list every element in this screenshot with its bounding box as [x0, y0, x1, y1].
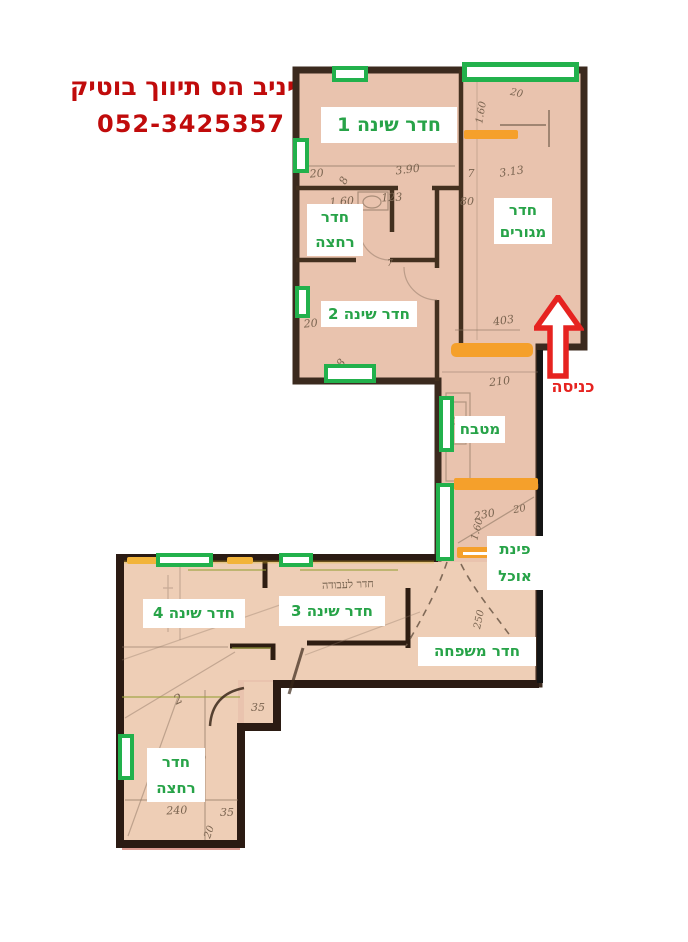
door-marker	[127, 557, 159, 564]
measurement: 35	[251, 701, 265, 714]
window-marker	[156, 553, 213, 567]
window-marker	[324, 364, 376, 383]
measurement: 7	[468, 167, 475, 180]
room-label-living: חדר מגורים	[494, 198, 552, 244]
window-marker	[118, 734, 134, 780]
window-marker	[279, 553, 313, 567]
entrance-label: כניסה	[542, 377, 604, 396]
room-label-bedroom4: חדר שינה 4	[143, 599, 245, 628]
measurement: 80	[460, 195, 474, 208]
measurement: 123	[381, 190, 403, 204]
window-marker	[439, 396, 454, 452]
door-marker	[454, 478, 538, 490]
measurement: 35	[220, 806, 234, 819]
handwritten-room-note: חדר לעבודה	[322, 577, 374, 592]
room-label-kitchen: מטבח	[455, 416, 505, 443]
flyer-page: יניב הס תיווך בוטיק 052-3425357	[0, 0, 688, 942]
room-label-bedroom3: חדר שינה 3	[279, 596, 385, 626]
window-marker	[462, 62, 579, 82]
door-marker-entrance	[451, 343, 533, 357]
measurement: 7	[387, 259, 393, 269]
window-marker	[295, 286, 310, 318]
measurement: 20	[308, 166, 324, 180]
room-label-bedroom1: חדר שינה 1	[321, 107, 457, 143]
room-label-dining: פינת אוכל	[487, 536, 543, 590]
measurement: 240	[165, 803, 188, 817]
room-label-bath-top: חדר רחצה	[307, 204, 363, 256]
room-label-bath-bottom: חדר רחצה	[147, 748, 205, 802]
door-marker	[227, 557, 253, 564]
entrance-arrow-icon	[534, 295, 584, 381]
window-marker	[436, 483, 454, 561]
measurement: 20	[302, 316, 318, 330]
room-label-bedroom2: חדר שינה 2	[321, 301, 417, 327]
window-marker	[293, 138, 309, 173]
room-label-family: חדר משפחה	[418, 637, 536, 666]
window-marker	[332, 66, 368, 82]
measurement: 210	[488, 374, 511, 389]
door-marker	[464, 130, 518, 139]
